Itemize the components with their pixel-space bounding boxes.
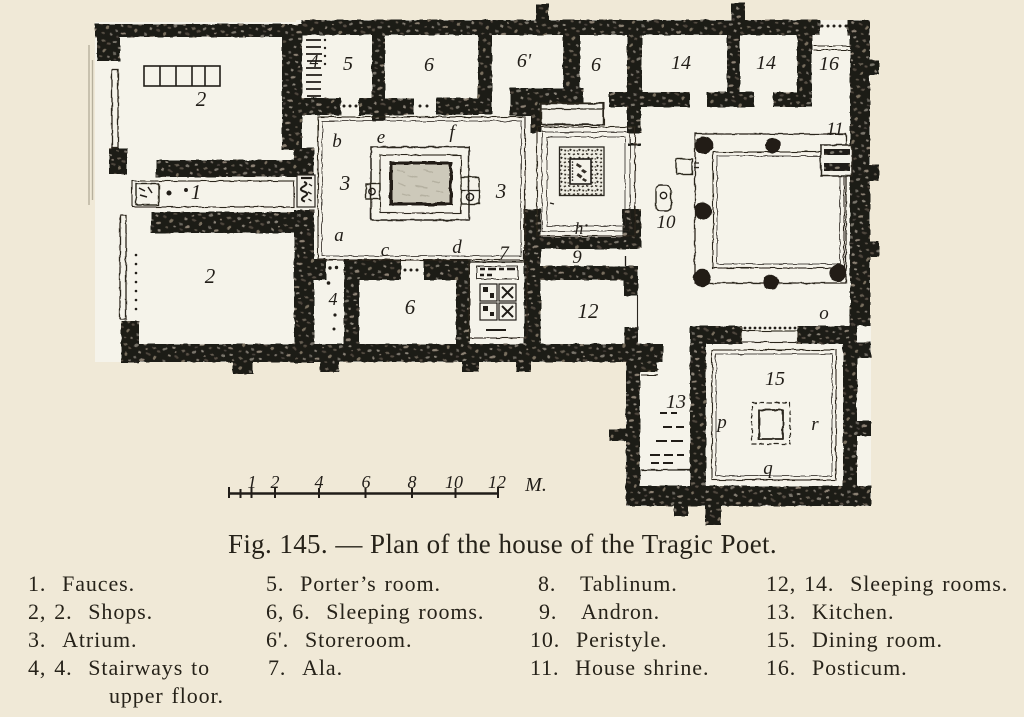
svg-text:q: q — [763, 458, 773, 479]
svg-text:a: a — [334, 225, 344, 246]
svg-text:11: 11 — [826, 119, 844, 140]
svg-text:2: 2 — [196, 87, 207, 111]
svg-text:9: 9 — [572, 247, 582, 268]
svg-text:e: e — [377, 127, 385, 148]
svg-text:o: o — [819, 303, 829, 324]
svg-text:2: 2 — [205, 264, 216, 288]
svg-text:12: 12 — [488, 472, 506, 492]
svg-text:r: r — [811, 414, 819, 435]
svg-text:6: 6 — [362, 472, 371, 492]
svg-text:14: 14 — [671, 52, 691, 74]
svg-text:6: 6 — [424, 54, 434, 76]
svg-text:6': 6' — [517, 50, 532, 72]
svg-text:15: 15 — [765, 368, 785, 390]
svg-text:c: c — [381, 240, 390, 261]
svg-text:12: 12 — [578, 299, 600, 323]
svg-text:b: b — [332, 131, 342, 152]
svg-text:2: 2 — [271, 472, 280, 492]
svg-text:3: 3 — [339, 171, 351, 195]
svg-text:p: p — [715, 412, 727, 433]
svg-text:1: 1 — [248, 472, 257, 492]
svg-text:10: 10 — [445, 472, 463, 492]
svg-text:4: 4 — [315, 472, 324, 492]
svg-text:5: 5 — [343, 53, 353, 75]
svg-text:16: 16 — [819, 53, 839, 75]
svg-text:14: 14 — [756, 52, 776, 74]
svg-text:4: 4 — [310, 51, 319, 71]
svg-text:1: 1 — [191, 180, 202, 204]
svg-text:4: 4 — [329, 289, 338, 309]
svg-text:3: 3 — [495, 179, 507, 203]
svg-text:8: 8 — [408, 472, 417, 492]
svg-text:10: 10 — [657, 212, 677, 233]
svg-text:6: 6 — [405, 295, 416, 319]
svg-text:13: 13 — [666, 391, 686, 413]
svg-text:6: 6 — [591, 54, 601, 76]
svg-text:h: h — [575, 219, 584, 238]
svg-text:d: d — [452, 237, 462, 258]
svg-text:M.: M. — [524, 474, 547, 496]
svg-text:7: 7 — [499, 243, 510, 264]
